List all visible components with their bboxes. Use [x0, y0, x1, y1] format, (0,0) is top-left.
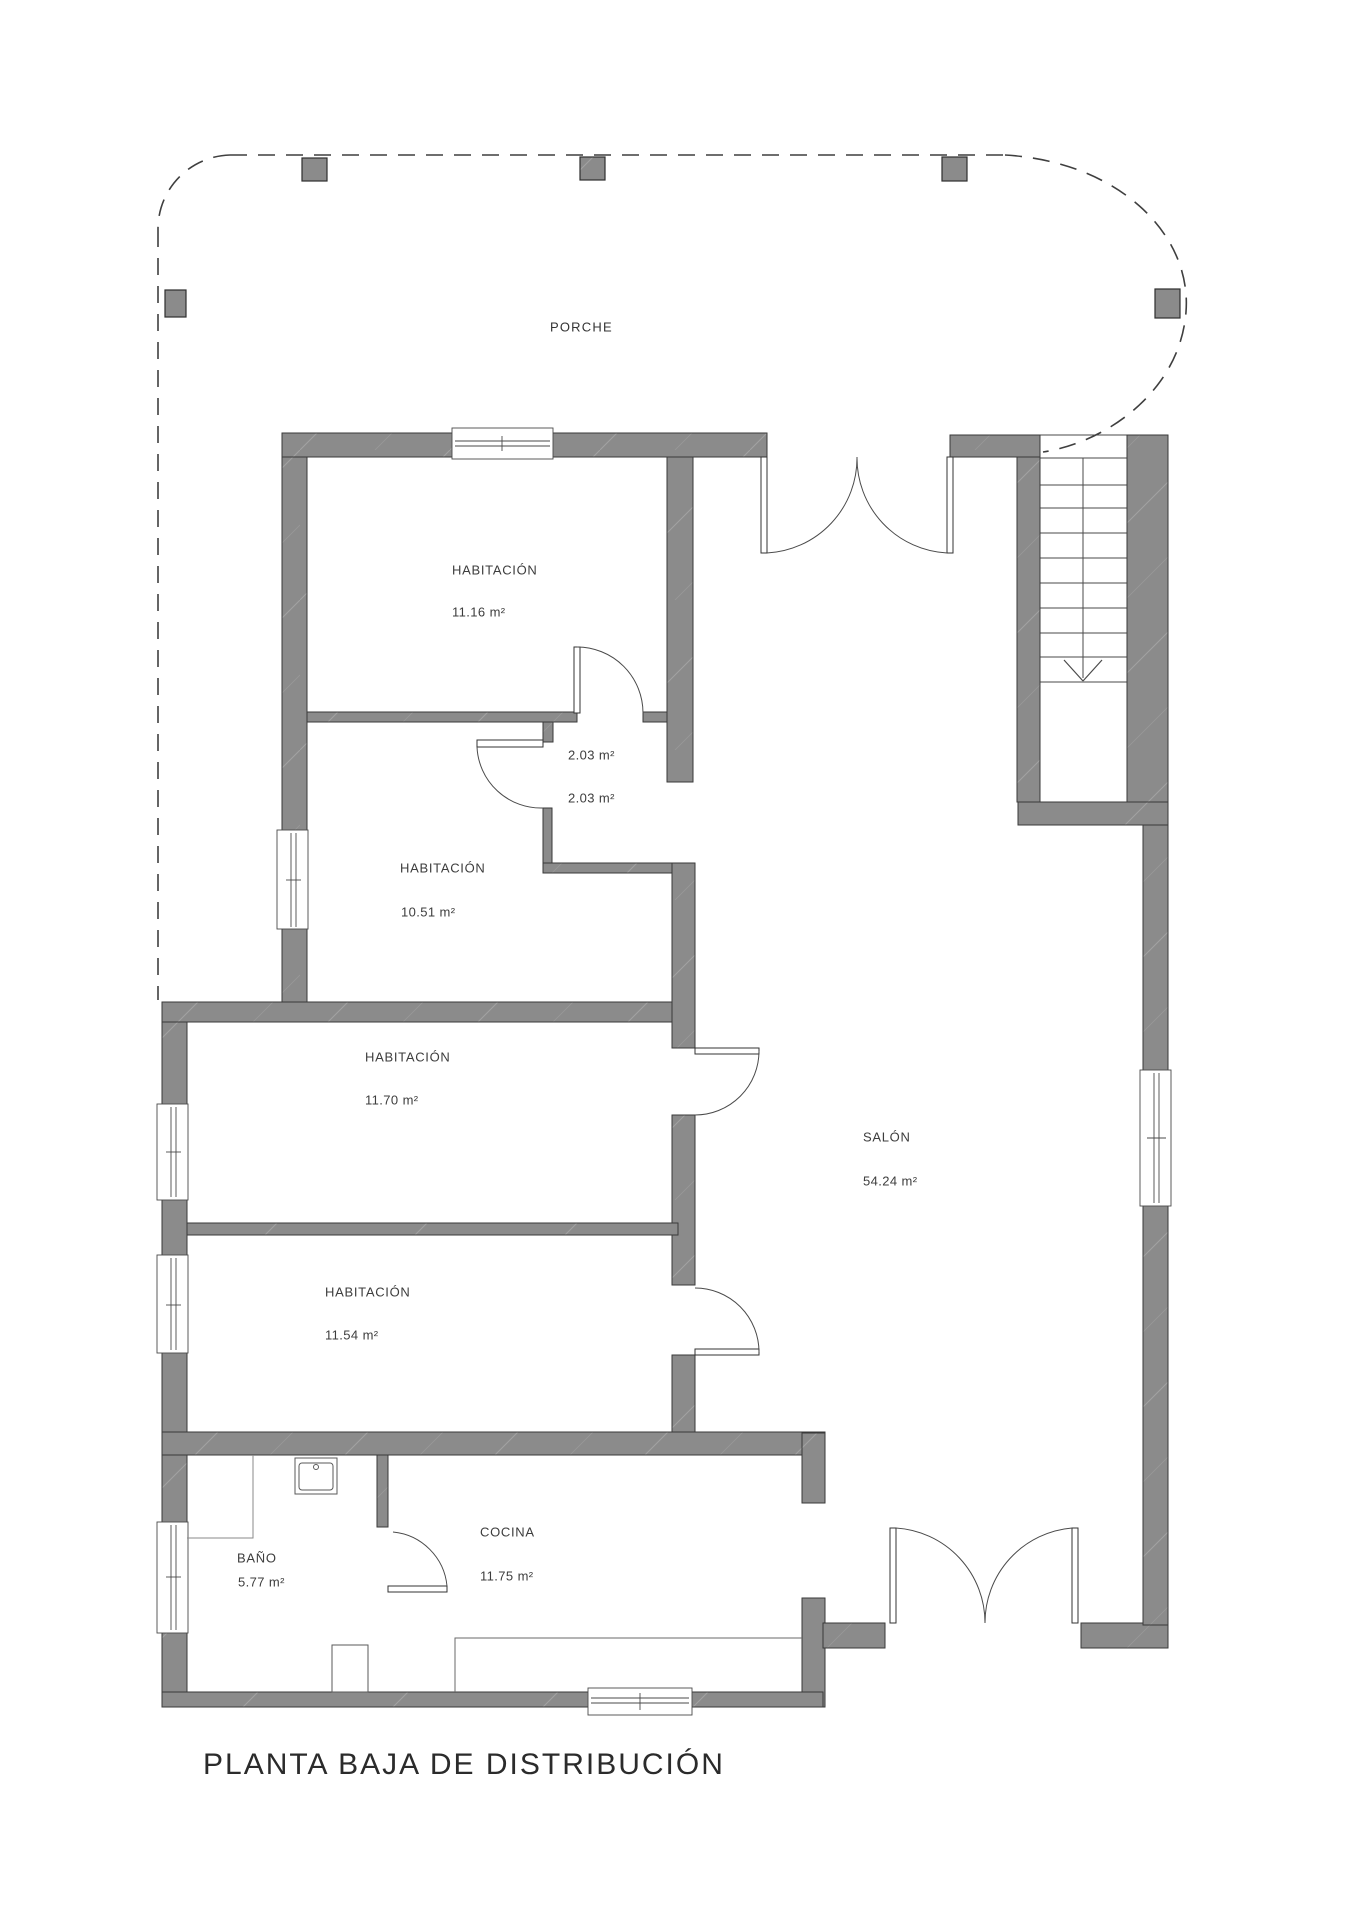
room-area-habitacion-1051: 10.51 m²: [401, 906, 456, 919]
room-area-salon: 54.24 m²: [863, 1175, 918, 1188]
wall-segment: [162, 1002, 695, 1022]
window-bottom-cocina: [588, 1688, 692, 1715]
window-left-habitacion-1154: [157, 1255, 188, 1353]
door-closet: [477, 740, 543, 808]
window-right-salon: [1140, 1070, 1171, 1206]
porch-column: [1155, 289, 1180, 318]
wall-segment: [282, 927, 307, 1004]
room-label-habitacion-1116: HABITACIÓN: [452, 564, 538, 577]
wall-segment: [162, 1432, 825, 1455]
room-area-cocina: 11.75 m²: [480, 1570, 534, 1583]
window-left-habitacion-1051: [277, 830, 308, 929]
door-salon-double: [890, 1528, 1078, 1623]
door-entry-double: [761, 457, 953, 553]
porch-label: PORCHE: [550, 321, 613, 334]
door-habitacion-1116: [574, 647, 643, 713]
porch-columns: [165, 157, 1180, 318]
shower: [187, 1455, 253, 1538]
room-area-habitacion-1116: 11.16 m²: [452, 606, 506, 619]
wall-segment: [1143, 822, 1168, 1073]
wall-segment: [1143, 1203, 1168, 1625]
wall-segment: [643, 712, 667, 722]
staircase: [1040, 435, 1127, 802]
door-habitacion-1170: [695, 1048, 759, 1115]
wall-segment: [672, 863, 695, 1048]
room-area-closet-b: 2.03 m²: [568, 792, 615, 805]
wall-segment: [672, 1355, 695, 1433]
plan-title: PLANTA BAJA DE DISTRIBUCIÓN: [203, 1750, 725, 1780]
porch-column: [165, 290, 186, 317]
wall-segment: [162, 1197, 187, 1258]
wall-segment: [1127, 435, 1168, 822]
room-label-habitacion-1154: HABITACIÓN: [325, 1286, 411, 1299]
floor-plan-drawing: [0, 0, 1358, 1920]
wall-segment: [1081, 1623, 1168, 1648]
wall-segment: [950, 435, 1040, 457]
wall-segment: [187, 1223, 678, 1235]
wall-segment: [1017, 457, 1040, 802]
porch-column: [942, 157, 967, 181]
kitchen-counter: [455, 1638, 802, 1692]
wall-segment: [282, 433, 455, 457]
wall-segment: [672, 1115, 695, 1285]
window-left-bano: [157, 1522, 188, 1633]
wall-segment: [377, 1455, 388, 1527]
room-label-bano: BAÑO: [237, 1552, 277, 1565]
wall-segment: [543, 863, 672, 873]
door-habitacion-1154: [695, 1288, 759, 1355]
wall-segment: [162, 1022, 187, 1107]
room-label-cocina: COCINA: [480, 1526, 535, 1539]
wall-segment: [543, 808, 552, 863]
toilet: [332, 1645, 368, 1692]
room-area-bano: 5.77 m²: [238, 1576, 285, 1589]
room-label-habitacion-1051: HABITACIÓN: [400, 862, 486, 875]
room-label-habitacion-1170: HABITACIÓN: [365, 1051, 451, 1064]
sink: [295, 1458, 337, 1494]
walls: [162, 433, 1168, 1707]
porch-column: [302, 158, 327, 181]
porch-column: [580, 157, 605, 180]
door-bano: [388, 1532, 447, 1592]
room-area-habitacion-1154: 11.54 m²: [325, 1329, 379, 1342]
wall-segment: [1018, 802, 1168, 825]
wall-segment: [162, 1692, 590, 1707]
wall-segment: [667, 457, 693, 782]
wall-segment: [550, 433, 767, 457]
wall-segment: [823, 1623, 885, 1648]
window-left-habitacion-1170: [157, 1104, 188, 1200]
floor-plan-page: PORCHE HABITACIÓN 11.16 m² 2.03 m² 2.03 …: [0, 0, 1358, 1920]
porch-corner-topleft: [158, 155, 230, 230]
wall-segment: [690, 1692, 823, 1707]
wall-segment: [282, 457, 307, 833]
wall-segment: [802, 1433, 825, 1503]
room-area-habitacion-1170: 11.70 m²: [365, 1094, 419, 1107]
wall-segment: [802, 1598, 825, 1707]
wall-segment: [162, 1455, 187, 1525]
room-label-salon: SALÓN: [863, 1131, 911, 1144]
window-top-habitacion-1116: [452, 428, 553, 459]
wall-segment: [543, 722, 553, 742]
room-area-closet-a: 2.03 m²: [568, 749, 615, 762]
wall-segment: [307, 712, 577, 722]
